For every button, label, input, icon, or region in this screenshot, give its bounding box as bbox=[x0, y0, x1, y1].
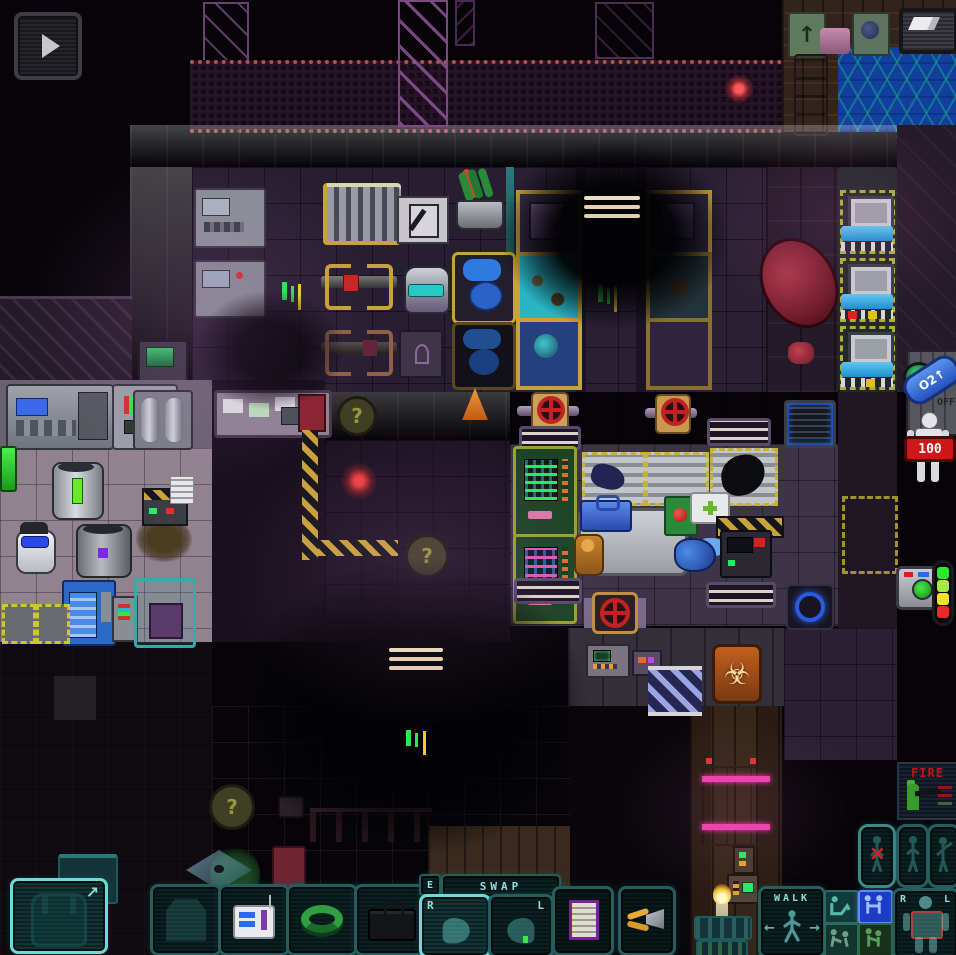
up-arrow-glyph: ↑ bbox=[798, 23, 816, 48]
vending-machine[interactable] bbox=[62, 580, 116, 646]
plant-pot bbox=[456, 200, 504, 230]
green-drip-indicator bbox=[406, 730, 411, 746]
right-hand-label: R bbox=[427, 899, 436, 912]
wall-monitor[interactable] bbox=[138, 340, 188, 384]
walk-right-arrow: → bbox=[809, 921, 820, 936]
red-warning-light bbox=[340, 462, 378, 500]
vertical-pipe bbox=[794, 54, 828, 136]
vending-door bbox=[69, 592, 97, 638]
door-indicator-light bbox=[750, 758, 756, 764]
pipe-elbow bbox=[820, 28, 850, 54]
wiki-button[interactable] bbox=[899, 8, 956, 54]
apple-icon bbox=[673, 508, 687, 522]
wall-sign-pen bbox=[397, 196, 449, 244]
fire-poster[interactable]: FIRE bbox=[897, 762, 956, 820]
sleeper-bed[interactable] bbox=[840, 258, 895, 322]
pipe-bracket bbox=[367, 330, 393, 376]
point-button[interactable] bbox=[927, 824, 956, 888]
sleeper-bed[interactable] bbox=[840, 190, 895, 254]
wirecutters-icon bbox=[627, 903, 667, 937]
space-truss bbox=[595, 2, 654, 59]
yellow-button[interactable] bbox=[866, 379, 875, 387]
grab-intent-icon bbox=[860, 892, 887, 918]
quarantine-door[interactable] bbox=[700, 766, 776, 846]
apc-leds bbox=[593, 664, 617, 669]
rest-x-overlay: × bbox=[869, 841, 886, 865]
shelf-rack[interactable] bbox=[694, 916, 752, 940]
equipment-doll-panel[interactable]: R L bbox=[892, 888, 956, 955]
fire-poster-title: FIRE bbox=[899, 766, 956, 780]
shelf-rack[interactable] bbox=[696, 940, 748, 955]
blue-splat bbox=[588, 461, 627, 493]
console-buttons bbox=[204, 222, 244, 232]
green-led bbox=[149, 508, 157, 514]
health-segment-red bbox=[937, 606, 949, 618]
camera-red-light bbox=[904, 572, 913, 577]
upper-left-diagonal-wall bbox=[0, 296, 132, 387]
valve-wheel bbox=[600, 598, 630, 628]
table-bug bbox=[214, 865, 224, 873]
hazard-border-tile bbox=[36, 604, 70, 644]
floor-valve[interactable] bbox=[592, 592, 638, 634]
se-floor bbox=[784, 628, 897, 760]
red-small-item[interactable] bbox=[788, 342, 814, 364]
paper-document-icon bbox=[569, 900, 599, 940]
suit-slot[interactable] bbox=[150, 884, 222, 955]
chem-screen bbox=[16, 398, 48, 416]
vendor-screen bbox=[524, 459, 558, 501]
doll-chest-armor[interactable] bbox=[911, 911, 943, 939]
console-screen bbox=[727, 537, 753, 553]
wall-sign-small bbox=[399, 330, 443, 378]
robot-visor bbox=[408, 284, 444, 297]
doll-head bbox=[919, 896, 932, 909]
question-glyph: ? bbox=[351, 404, 363, 428]
intent-grab-button[interactable] bbox=[858, 890, 893, 924]
red-button[interactable] bbox=[848, 311, 857, 319]
biohazard-icon: ☣ bbox=[724, 657, 751, 692]
sidebar-toggle-button[interactable] bbox=[14, 12, 82, 80]
blue-chair[interactable] bbox=[452, 322, 516, 390]
door-magenta-stripe bbox=[702, 776, 770, 782]
soldier-figure-icon bbox=[907, 784, 919, 810]
intent-help-button[interactable] bbox=[824, 890, 859, 924]
pointing-figure-icon bbox=[933, 834, 955, 878]
white-medical-device-icon bbox=[233, 905, 275, 939]
health-segment-yellow bbox=[937, 593, 949, 605]
red-button[interactable] bbox=[754, 538, 765, 547]
bag-slot[interactable] bbox=[354, 884, 426, 955]
blue-ring-port bbox=[786, 584, 834, 630]
panel-led bbox=[739, 861, 746, 866]
sign-glyph bbox=[415, 344, 429, 364]
canister[interactable] bbox=[52, 462, 104, 520]
shadow-patch bbox=[195, 290, 345, 410]
panel-screen bbox=[742, 882, 754, 893]
doll-head bbox=[921, 412, 938, 429]
bed-rail bbox=[841, 242, 893, 251]
medibot[interactable] bbox=[398, 262, 452, 318]
vending-panel bbox=[101, 592, 111, 622]
vent-slats-glyph bbox=[389, 648, 443, 652]
pipe-bracket bbox=[367, 264, 393, 310]
red-led bbox=[166, 508, 174, 514]
hazard-edge-vertical bbox=[302, 430, 318, 560]
backpack-icon bbox=[31, 893, 87, 947]
health-segment-green bbox=[937, 567, 949, 579]
valve-wheel bbox=[537, 396, 565, 424]
right-hand-slot[interactable]: R bbox=[419, 894, 491, 955]
chair-seat bbox=[469, 281, 503, 311]
intent-disarm-button[interactable] bbox=[824, 923, 859, 955]
blue-grate bbox=[784, 400, 836, 448]
hand-icon bbox=[501, 913, 541, 947]
machine-off-label: OFF bbox=[937, 397, 955, 408]
bed-canopy bbox=[848, 332, 894, 366]
help-intent-icon bbox=[826, 892, 853, 918]
status-led bbox=[236, 272, 243, 279]
chem-panel bbox=[16, 420, 76, 436]
hazard-edge-horizontal bbox=[318, 540, 398, 556]
device-slot[interactable] bbox=[218, 884, 290, 955]
wall-panel[interactable] bbox=[727, 874, 759, 904]
fixture-coil bbox=[534, 334, 558, 358]
robot-head bbox=[20, 522, 48, 534]
backpack-slot[interactable]: ↗ bbox=[10, 878, 108, 954]
panel-leds bbox=[733, 881, 739, 895]
green-cross-icon bbox=[703, 501, 717, 515]
space-truss bbox=[455, 0, 475, 46]
air-vent bbox=[707, 418, 771, 446]
question-glyph: ? bbox=[226, 795, 238, 819]
vendor-lights bbox=[562, 459, 568, 501]
key-hint-label: E bbox=[427, 880, 433, 891]
dark-smoke-cloud bbox=[238, 556, 588, 856]
potted-plant[interactable] bbox=[452, 172, 504, 228]
yellow-button[interactable] bbox=[868, 311, 877, 319]
radiator[interactable] bbox=[323, 183, 401, 245]
candle-flame bbox=[713, 884, 731, 904]
camera-blue-light bbox=[918, 572, 929, 577]
console-machine[interactable] bbox=[194, 188, 266, 248]
medbay-console[interactable] bbox=[720, 530, 772, 578]
tank-rack[interactable] bbox=[133, 390, 193, 450]
poster-red-lines bbox=[938, 786, 952, 789]
monitor-screen bbox=[146, 347, 174, 367]
walk-toggle-button[interactable]: WALK ← → bbox=[758, 886, 826, 955]
chem-machine[interactable] bbox=[6, 384, 114, 450]
canister-purple-dot bbox=[98, 548, 108, 558]
green-led bbox=[728, 560, 735, 566]
glass-containment-box[interactable] bbox=[134, 578, 196, 648]
green-bottle[interactable] bbox=[0, 446, 17, 492]
gas-valve[interactable] bbox=[517, 396, 579, 426]
tank-cylinder bbox=[165, 398, 183, 442]
faint-tile bbox=[54, 676, 96, 720]
play-arrow-icon bbox=[42, 34, 60, 58]
tank-cylinder bbox=[141, 398, 159, 442]
wire-coil-icon bbox=[861, 21, 879, 39]
game-viewport: ↑ bbox=[0, 0, 956, 955]
health-segment-lightgreen bbox=[937, 580, 949, 592]
belt-slot[interactable] bbox=[286, 884, 358, 955]
bed-mattress bbox=[841, 362, 893, 377]
o2-label: O2↑ bbox=[916, 366, 948, 393]
gas-valve[interactable] bbox=[645, 398, 697, 428]
health-bar bbox=[932, 560, 954, 626]
intent-harm-button[interactable] bbox=[858, 923, 893, 955]
doll-left-label: L bbox=[944, 894, 952, 905]
hazard-border-tile bbox=[2, 604, 36, 644]
space-truss bbox=[203, 2, 249, 64]
pull-button[interactable] bbox=[896, 824, 929, 888]
harm-intent-icon bbox=[860, 925, 887, 951]
nanomed-vendor[interactable] bbox=[513, 446, 577, 538]
canister[interactable] bbox=[76, 524, 132, 578]
bed-mattress bbox=[841, 226, 893, 241]
dark-smoke-cloud bbox=[500, 140, 730, 330]
chair-back bbox=[463, 259, 501, 281]
doll-arm bbox=[903, 913, 910, 931]
left-hand-label: L bbox=[537, 899, 546, 912]
doll-arm bbox=[942, 913, 949, 931]
tool-item-slot[interactable] bbox=[618, 886, 676, 955]
panel-led bbox=[739, 852, 746, 858]
white-robot[interactable] bbox=[12, 524, 56, 576]
paper-item-slot[interactable] bbox=[552, 886, 614, 955]
plant-leaves bbox=[458, 171, 475, 202]
sleeper-bed[interactable] bbox=[840, 326, 895, 390]
console-screen bbox=[202, 270, 230, 288]
health-value-badge: 100 bbox=[904, 436, 956, 462]
canister-green-slot bbox=[72, 478, 83, 504]
camera-lens bbox=[912, 579, 933, 600]
armor-silhouette-icon bbox=[166, 899, 206, 941]
air-vent bbox=[706, 582, 776, 608]
walk-left-arrow: ← bbox=[764, 921, 775, 936]
console-screen bbox=[202, 198, 230, 216]
swap-label: SWAP bbox=[480, 880, 523, 893]
door-magenta-stripe bbox=[702, 824, 770, 830]
chem-hood bbox=[78, 392, 108, 440]
health-value: 100 bbox=[918, 442, 941, 457]
wall-note[interactable] bbox=[170, 476, 194, 504]
apc-screen bbox=[593, 650, 611, 662]
robot-visor bbox=[21, 536, 49, 548]
bed-mattress bbox=[841, 294, 893, 309]
panel-led bbox=[638, 657, 646, 663]
swap-key-hint: E bbox=[419, 874, 441, 896]
bed-canopy bbox=[848, 264, 894, 298]
space-truss-tall bbox=[398, 0, 448, 127]
blue-toolbox[interactable] bbox=[580, 500, 632, 532]
pipe-coil-tile bbox=[852, 12, 890, 56]
blue-item-pile[interactable] bbox=[674, 538, 716, 572]
vendor-slot bbox=[528, 511, 552, 519]
backpack-corner-arrow: ↗ bbox=[86, 883, 99, 902]
vent-slats-glyph bbox=[584, 196, 640, 200]
panel-led bbox=[648, 657, 654, 663]
green-utility-belt-icon bbox=[301, 905, 343, 933]
blue-ring bbox=[795, 592, 825, 622]
yellow-corner-frame bbox=[842, 496, 898, 574]
intent-selector bbox=[824, 890, 890, 954]
chair-seat bbox=[469, 349, 499, 375]
disarm-intent-icon bbox=[826, 925, 853, 951]
doll-right-label: R bbox=[900, 894, 908, 905]
paper-page-icon bbox=[908, 17, 940, 30]
red-alarm-light bbox=[724, 74, 754, 104]
bed-canopy bbox=[848, 196, 894, 230]
doll-leg bbox=[915, 937, 923, 953]
held-item-speck bbox=[523, 936, 528, 943]
rest-button[interactable]: × bbox=[858, 824, 896, 888]
blast-shutter-window bbox=[648, 666, 702, 716]
inner-machine bbox=[149, 603, 183, 639]
left-hand-slot[interactable]: L bbox=[488, 894, 554, 955]
biohazard-sign: ☣ bbox=[712, 644, 762, 704]
valve-wheel bbox=[661, 398, 689, 426]
walk-label: WALK bbox=[761, 893, 823, 904]
canister-lid bbox=[83, 524, 123, 534]
doll-leg bbox=[929, 937, 937, 953]
health-doll-indicator[interactable]: 100 bbox=[904, 412, 952, 486]
black-briefcase-icon bbox=[368, 909, 416, 941]
led-dots bbox=[118, 604, 130, 620]
solar-glass-floor bbox=[838, 47, 956, 132]
apc-unit[interactable] bbox=[586, 644, 630, 678]
chair-back bbox=[463, 329, 501, 349]
wall-panel[interactable] bbox=[733, 846, 755, 874]
door-indicator-light bbox=[706, 758, 712, 764]
standing-figure-icon bbox=[902, 834, 924, 878]
hand-icon bbox=[436, 913, 476, 947]
toolbox-handle bbox=[596, 495, 620, 511]
catwalk-mesh bbox=[190, 60, 782, 133]
canister-lid bbox=[58, 462, 94, 472]
walking-figure-icon bbox=[780, 909, 804, 945]
